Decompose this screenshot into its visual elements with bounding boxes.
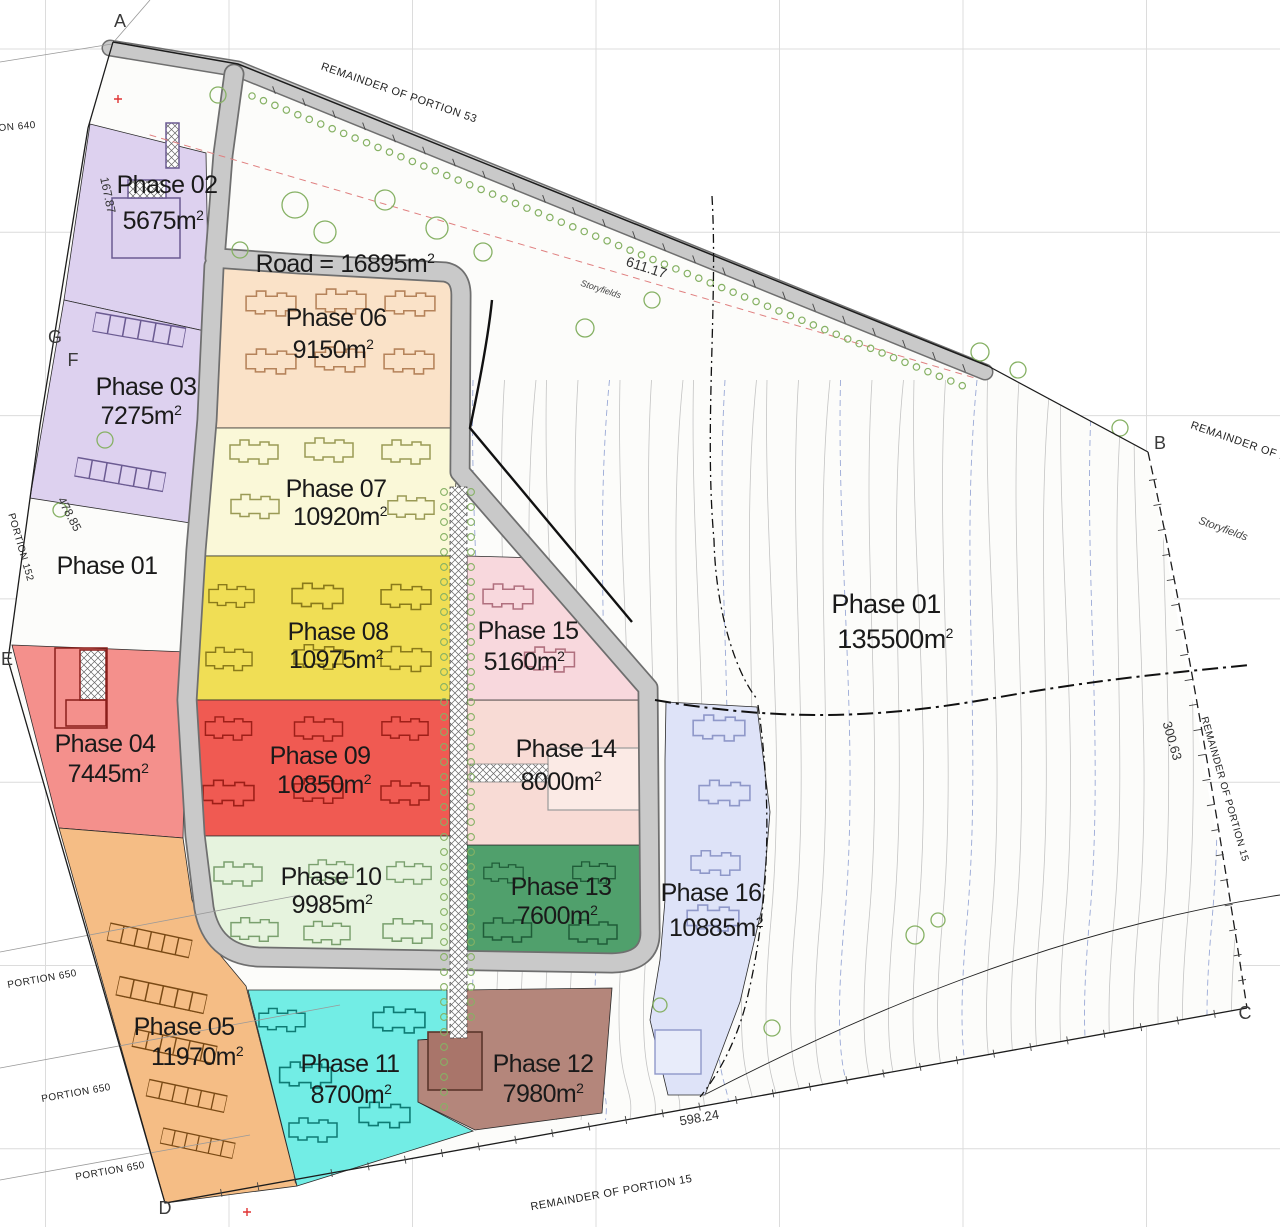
phase-10-area: 9985m2 [292, 891, 373, 919]
corner-b: B [1154, 433, 1166, 453]
corner-d: D [159, 1198, 172, 1218]
phase-07-label: Phase 07 [286, 475, 387, 503]
phase-16-area: 10885m2 [669, 914, 764, 942]
corner-a: A [114, 11, 126, 31]
phase-09-label: Phase 09 [270, 742, 371, 770]
phase-06-area: 9150m2 [293, 336, 374, 364]
corner-e: E [1, 649, 13, 669]
phase-04-label: Phase 04 [55, 730, 157, 758]
phase-03-area: 7275m2 [101, 402, 182, 430]
phase-14-label: Phase 14 [516, 735, 618, 763]
remainder-right-upper-label: REMAINDER OF PORTION [1189, 419, 1280, 478]
phase-13-label: Phase 13 [511, 873, 612, 901]
corner-c: C [1239, 1003, 1252, 1023]
phase-14-area: 8000m2 [521, 768, 602, 796]
phase-01-left-label: Phase 01 [57, 552, 158, 580]
portion-650-b-label: PORTION 650 [41, 1082, 112, 1105]
phase-03-label: Phase 03 [96, 373, 197, 401]
phase-06-label: Phase 06 [286, 304, 387, 332]
phase-04-area: 7445m2 [68, 760, 149, 788]
phase-15-area: 5160m2 [484, 648, 565, 676]
phase-01-area: 135500m2 [837, 624, 953, 654]
phase-05-label: Phase 05 [134, 1013, 235, 1041]
site-plan-page: Phase 01 Phase 01 135500m2 Phase 02 5675… [0, 0, 1280, 1227]
phase-11-label: Phase 11 [301, 1050, 400, 1078]
phase-05-area: 11970m2 [151, 1043, 244, 1071]
portion-650-a-label: PORTION 650 [7, 968, 78, 991]
survey-cross-d [243, 1208, 251, 1216]
corner-f: F [68, 350, 79, 370]
corner-g: G [48, 327, 62, 347]
phase-01-label: Phase 01 [831, 589, 940, 619]
phase-12-label: Phase 12 [493, 1050, 594, 1078]
phase-07-area: 10920m2 [293, 503, 388, 531]
storyfields-right-label: Storyfields [1197, 515, 1250, 544]
road-area-label: Road =16895m2 [256, 250, 435, 278]
site-plan-drawing: Phase 01 Phase 01 135500m2 Phase 02 5675… [0, 0, 1280, 1227]
phase-02-label: Phase 02 [117, 171, 218, 199]
remainder-bottom-label: REMAINDER OF PORTION 15 [530, 1173, 694, 1213]
phase-13-area: 7600m2 [517, 902, 598, 930]
portion-640-label: PORTION 640 [0, 120, 36, 137]
phase-02-area: 5675m2 [123, 207, 204, 235]
phase-12-area: 7980m2 [503, 1080, 584, 1108]
phase-11-area: 8700m2 [311, 1081, 392, 1109]
phase-08-label: Phase 08 [288, 618, 389, 646]
phase-08-area: 10975m2 [289, 646, 384, 674]
phase-16-tail-building [655, 1030, 701, 1074]
portion-650-c-label: PORTION 650 [75, 1160, 146, 1183]
phase-09-area: 10850m2 [277, 771, 372, 799]
phase-12-building [428, 1032, 482, 1090]
phase-10-label: Phase 10 [281, 863, 382, 891]
phase-15-label: Phase 15 [478, 617, 579, 645]
phase-16-label: Phase 16 [661, 879, 762, 907]
servitude-hatch-strip [450, 487, 467, 1038]
